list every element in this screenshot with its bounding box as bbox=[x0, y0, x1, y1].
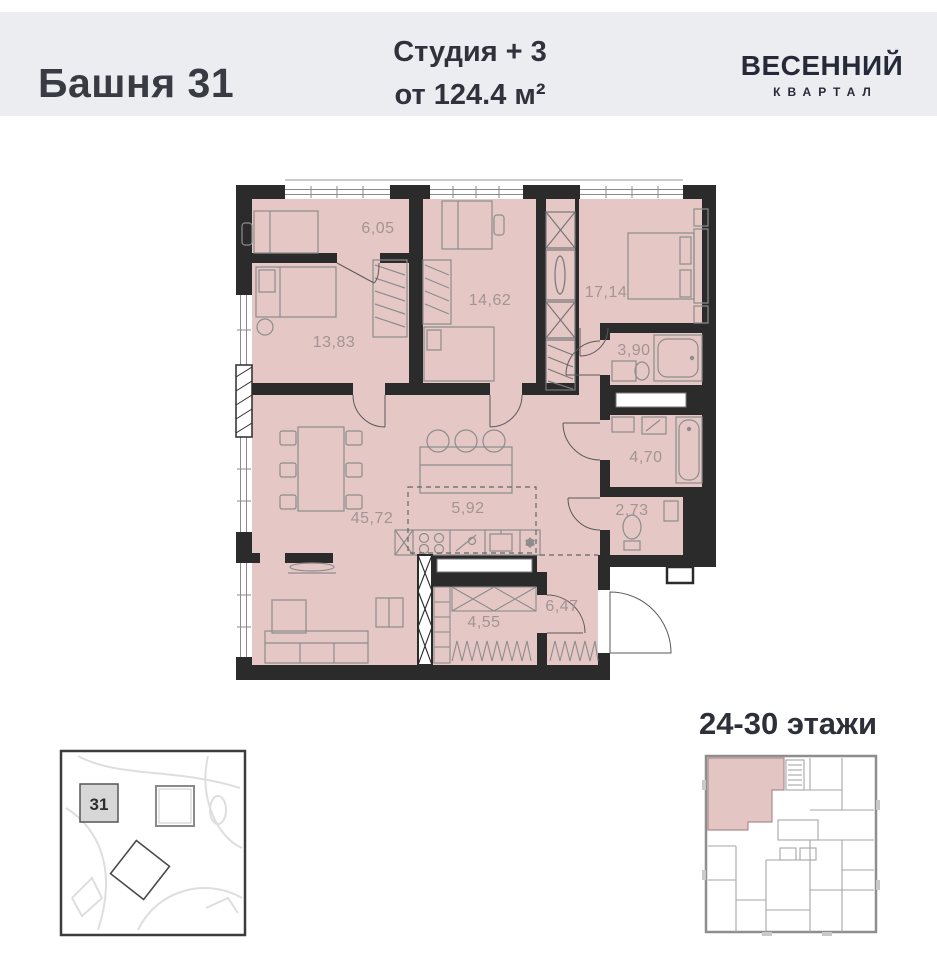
pilaster-hatch bbox=[236, 365, 252, 437]
room-area-label: 4,55 bbox=[467, 614, 500, 631]
room-area-label: 6,47 bbox=[545, 598, 578, 615]
room-area-label: 13,83 bbox=[313, 334, 356, 351]
highlighted-apartment bbox=[708, 758, 784, 830]
brand-name: ВЕСЕННИЙ bbox=[738, 50, 906, 82]
entrance-door-arc-icon bbox=[610, 592, 671, 653]
window-icon bbox=[236, 563, 252, 657]
building-number-label: 31 bbox=[90, 795, 109, 814]
window-icon bbox=[430, 185, 523, 199]
tech-column-icon bbox=[418, 555, 432, 665]
room-area-label: 14,62 bbox=[469, 292, 512, 309]
room-area-label: 5,92 bbox=[451, 500, 484, 517]
window-icon bbox=[236, 295, 252, 365]
window-icon bbox=[285, 185, 390, 199]
floors-range-label: 24-30 этажи bbox=[656, 706, 920, 742]
header: Башня 31 Студия + 3 от 124.4 м² ВЕСЕННИЙ… bbox=[0, 12, 937, 116]
level-plan bbox=[700, 748, 884, 940]
floor-plan: ❄ bbox=[228, 175, 720, 690]
brand-logo: ВЕСЕННИЙ КВАРТАЛ bbox=[738, 50, 906, 99]
kitchen-counter-icon: ❄ bbox=[395, 530, 540, 555]
site-map: 31 bbox=[58, 748, 248, 938]
site-building-outline bbox=[156, 786, 194, 826]
room-area-label: 3,90 bbox=[617, 342, 650, 359]
unit-type: Студия + 3 bbox=[320, 36, 620, 69]
window-icon bbox=[236, 437, 252, 532]
room-area-label: 4,70 bbox=[629, 449, 662, 466]
brand-subtitle: КВАРТАЛ bbox=[738, 85, 906, 99]
page: Башня 31 Студия + 3 от 124.4 м² ВЕСЕННИЙ… bbox=[0, 0, 937, 960]
site-map-outline bbox=[61, 751, 245, 935]
room-area-label: 2,73 bbox=[615, 502, 648, 519]
room-area-label: 45,72 bbox=[351, 510, 394, 527]
room-area-label: 6,05 bbox=[361, 220, 394, 237]
window-icon bbox=[580, 185, 683, 199]
tower-title: Башня 31 bbox=[38, 60, 234, 107]
unit-info: Студия + 3 от 124.4 м² bbox=[320, 36, 620, 112]
room-area-label: 17,14 bbox=[585, 284, 628, 301]
unit-area: от 124.4 м² bbox=[320, 79, 620, 112]
site-building-31: 31 bbox=[80, 784, 118, 822]
fridge-icon: ❄ bbox=[525, 536, 535, 550]
